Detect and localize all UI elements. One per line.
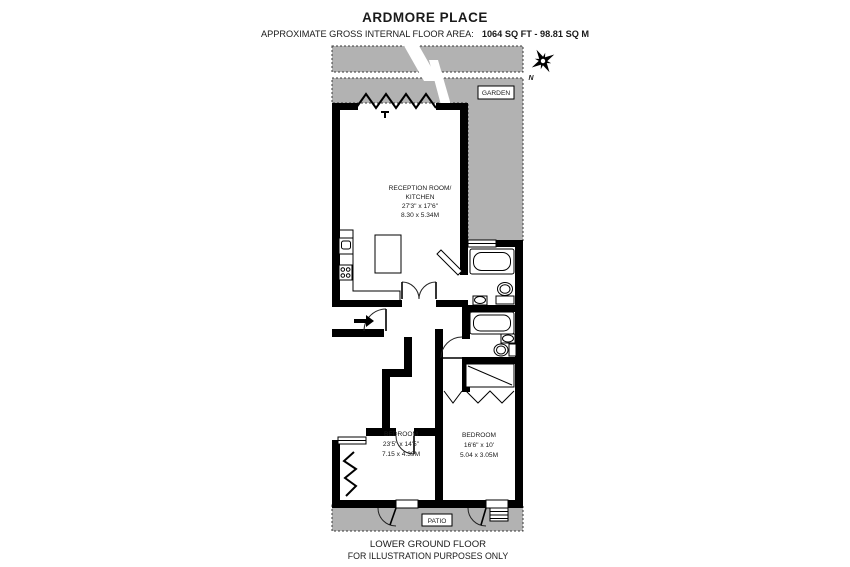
toilet-icon	[494, 344, 516, 356]
kitchen-island	[375, 235, 401, 273]
reception-room-label: RECEPTION ROOM/ KITCHEN 27'3" x 17'6" 8.…	[389, 185, 452, 219]
area-value: 1064 SQ FT - 98.81 SQ M	[482, 29, 590, 39]
patio-label: PATIO	[422, 514, 452, 526]
svg-text:23'5" x 14'5": 23'5" x 14'5"	[383, 441, 420, 448]
floorplan-page: N GARDEN PATIO RECEPTION ROOM/ KITCHEN 2…	[0, 0, 850, 567]
bathroom-2	[470, 312, 516, 356]
svg-text:8.30 x 5.34M: 8.30 x 5.34M	[401, 212, 439, 219]
compass-icon: N	[525, 43, 561, 82]
zigzag-wall	[344, 452, 356, 496]
floorplan-drawing: N GARDEN PATIO RECEPTION ROOM/ KITCHEN 2…	[0, 0, 850, 567]
bathtub-icon	[470, 249, 514, 274]
entrance-arrow-icon	[354, 315, 374, 327]
bedroom-2-label: BEDROOM 16'6" x 10' 5.04 x 3.05M	[460, 432, 498, 459]
door-leaf	[437, 250, 462, 275]
svg-text:27'3" x 17'6": 27'3" x 17'6"	[402, 203, 439, 210]
patio-door	[486, 500, 508, 508]
bedroom-1-label: BEDROOM 23'5" x 14'5" 7.15 x 4.39M	[382, 431, 420, 458]
svg-text:KITCHEN: KITCHEN	[406, 194, 435, 201]
bathroom-1	[470, 249, 514, 305]
svg-text:PATIO: PATIO	[428, 518, 447, 525]
steps	[490, 508, 508, 521]
compass-north-label: N	[528, 75, 534, 82]
svg-text:BEDROOM: BEDROOM	[384, 431, 418, 438]
svg-text:16'6" x 10': 16'6" x 10'	[464, 442, 494, 449]
svg-text:BEDROOM: BEDROOM	[462, 432, 496, 439]
area-subtitle: APPROXIMATE GROSS INTERNAL FLOOR AREA:10…	[261, 29, 589, 39]
bathtub-icon	[470, 312, 514, 334]
patio-door	[396, 500, 418, 508]
sink-icon	[473, 296, 487, 305]
disclaimer: FOR ILLUSTRATION PURPOSES ONLY	[348, 551, 509, 561]
wardrobe	[466, 364, 514, 403]
garden-label: GARDEN	[478, 86, 514, 99]
kitchen-units	[339, 230, 401, 300]
page-title: ARDMORE PLACE	[362, 10, 488, 25]
svg-text:7.15 x 4.39M: 7.15 x 4.39M	[382, 451, 420, 458]
svg-text:RECEPTION ROOM/: RECEPTION ROOM/	[389, 185, 452, 192]
floor-name: LOWER GROUND FLOOR	[370, 539, 486, 550]
svg-text:GARDEN: GARDEN	[482, 90, 510, 97]
area-label: APPROXIMATE GROSS INTERNAL FLOOR AREA:	[261, 29, 474, 39]
sink-icon	[501, 334, 515, 343]
toilet-icon	[496, 283, 514, 305]
svg-text:5.04 x 3.05M: 5.04 x 3.05M	[460, 452, 498, 459]
t-mark	[384, 111, 386, 118]
hob-icon	[339, 265, 352, 280]
